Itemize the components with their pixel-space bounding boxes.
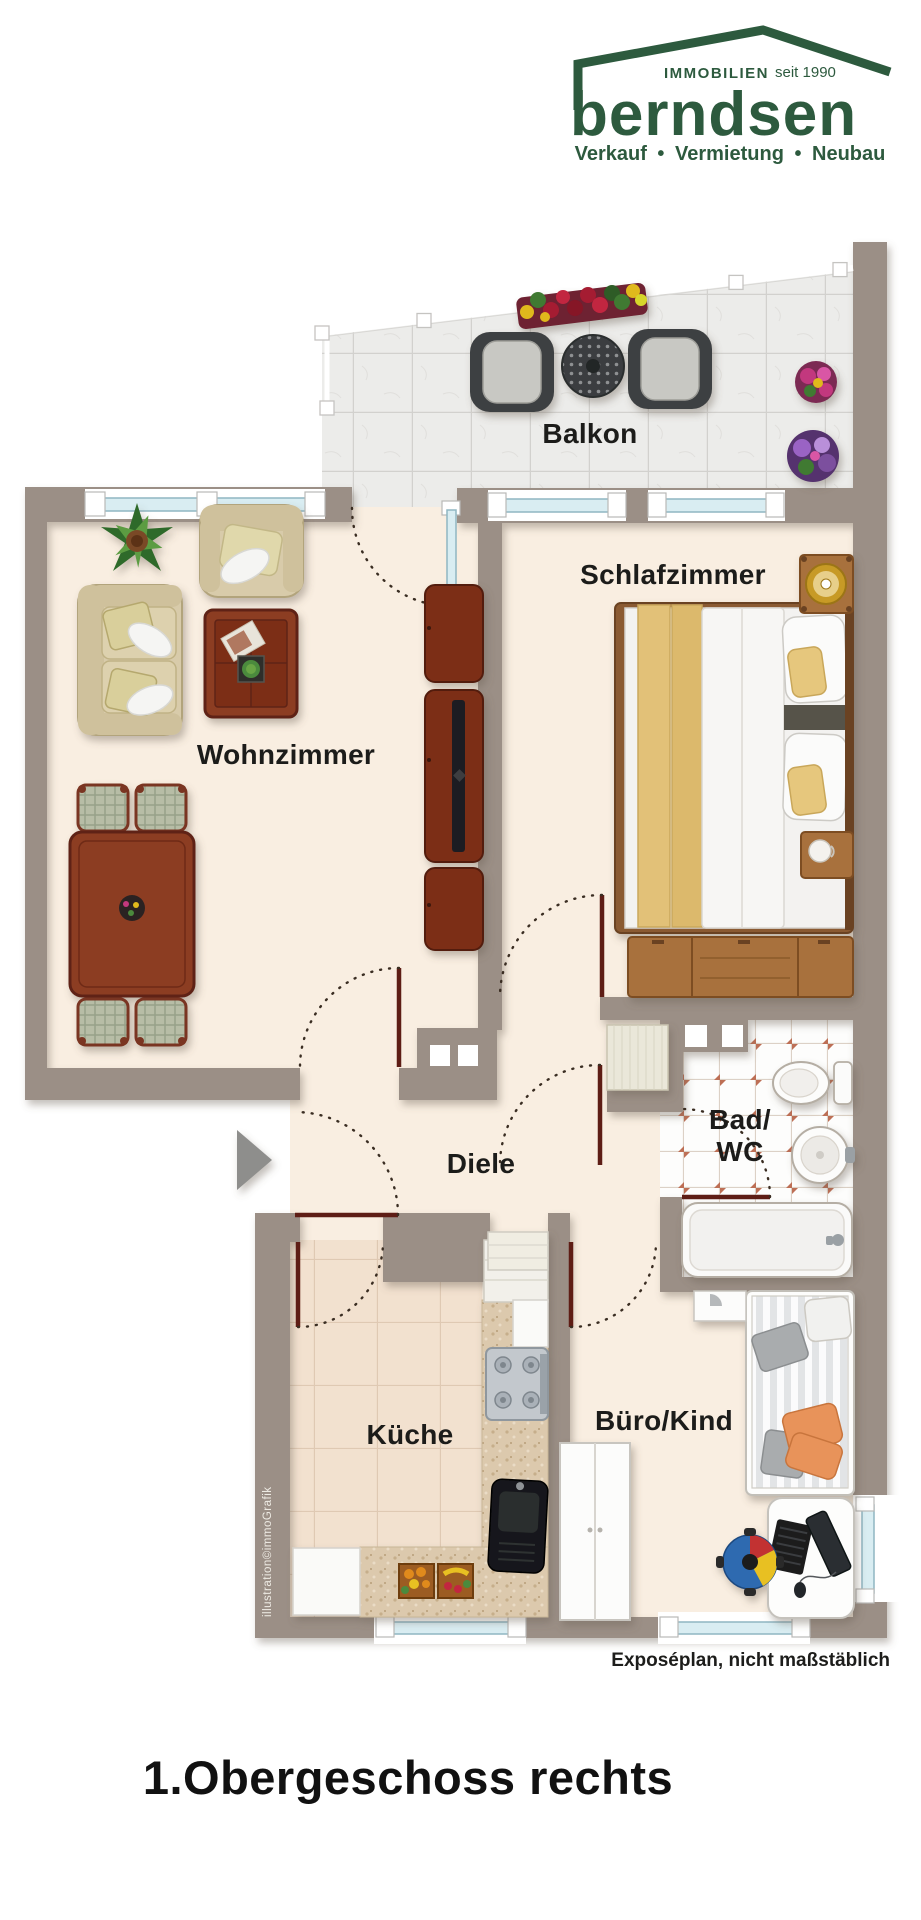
logo-tagline: Verkauf • Vermietung • Neubau	[560, 143, 900, 166]
kitchen-sink-icon	[488, 1479, 549, 1574]
daybed-side-box	[694, 1291, 746, 1321]
sideboard	[628, 937, 853, 997]
tv-board	[425, 585, 483, 950]
window-buero-ost	[853, 1495, 910, 1603]
room-label-wohnzimmer: Wohnzimmer	[197, 739, 375, 771]
balcony-chair-right	[628, 329, 712, 409]
room-label-balkon: Balkon	[542, 418, 637, 450]
stove-icon	[486, 1348, 548, 1420]
berndsen-logo: IMMOBILIEN seit 1990 berndsen Verkauf • …	[460, 16, 921, 166]
hall-shelf	[488, 1232, 548, 1270]
illustration-credit: illustration©immoGrafik	[262, 1486, 274, 1617]
armchair	[200, 505, 303, 597]
wardrobe	[560, 1443, 630, 1620]
plan-disclaimer: Exposéplan, nicht maßstäblich	[611, 1650, 890, 1672]
bathtub	[682, 1203, 852, 1277]
balcony-table	[562, 335, 624, 397]
daybed	[746, 1291, 854, 1495]
coffee-table	[205, 610, 297, 717]
nightstand-lamp	[800, 555, 853, 613]
floorplan-page: IMMOBILIEN seit 1990 berndsen Verkauf • …	[0, 0, 921, 1920]
room-label-buero-kind: Büro/Kind	[595, 1405, 733, 1437]
toilet-icon	[773, 1062, 852, 1104]
room-label-bad-wc: Bad/ WC	[709, 1104, 771, 1168]
bad-wc-line2: WC	[709, 1136, 771, 1168]
room-label-diele: Diele	[447, 1148, 515, 1180]
flower-pot-2	[787, 430, 839, 482]
logo-since-label: seit 1990	[775, 64, 836, 81]
bad-wc-line1: Bad/	[709, 1104, 771, 1136]
sofa	[78, 585, 182, 735]
floor-plan-graphic	[0, 0, 921, 1920]
room-label-schlafzimmer: Schlafzimmer	[580, 559, 766, 591]
nightstand-2	[801, 832, 853, 878]
window-schlafzimmer-2	[648, 490, 785, 521]
linen-closet	[607, 1025, 668, 1090]
balcony-chair-left	[470, 332, 554, 412]
floor-title: 1.Obergeschoss rechts	[0, 1750, 816, 1805]
logo-brand-wordmark: berndsen	[570, 84, 857, 146]
room-label-kueche: Küche	[366, 1419, 453, 1451]
flower-pot-1	[795, 361, 837, 403]
bed	[615, 603, 853, 933]
window-schlafzimmer-1	[488, 490, 626, 521]
